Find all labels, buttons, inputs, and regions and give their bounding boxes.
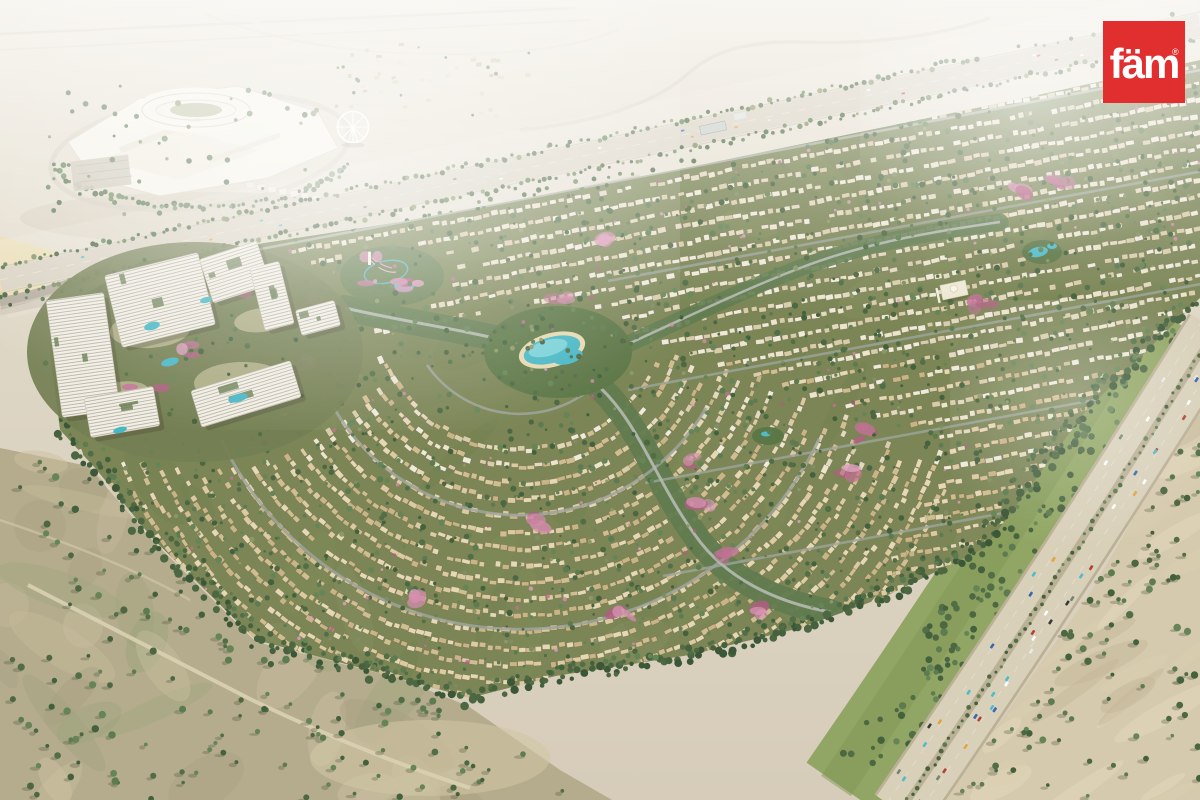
scene-svg — [0, 0, 1200, 800]
aerial-render: fäm ® — [0, 0, 1200, 800]
